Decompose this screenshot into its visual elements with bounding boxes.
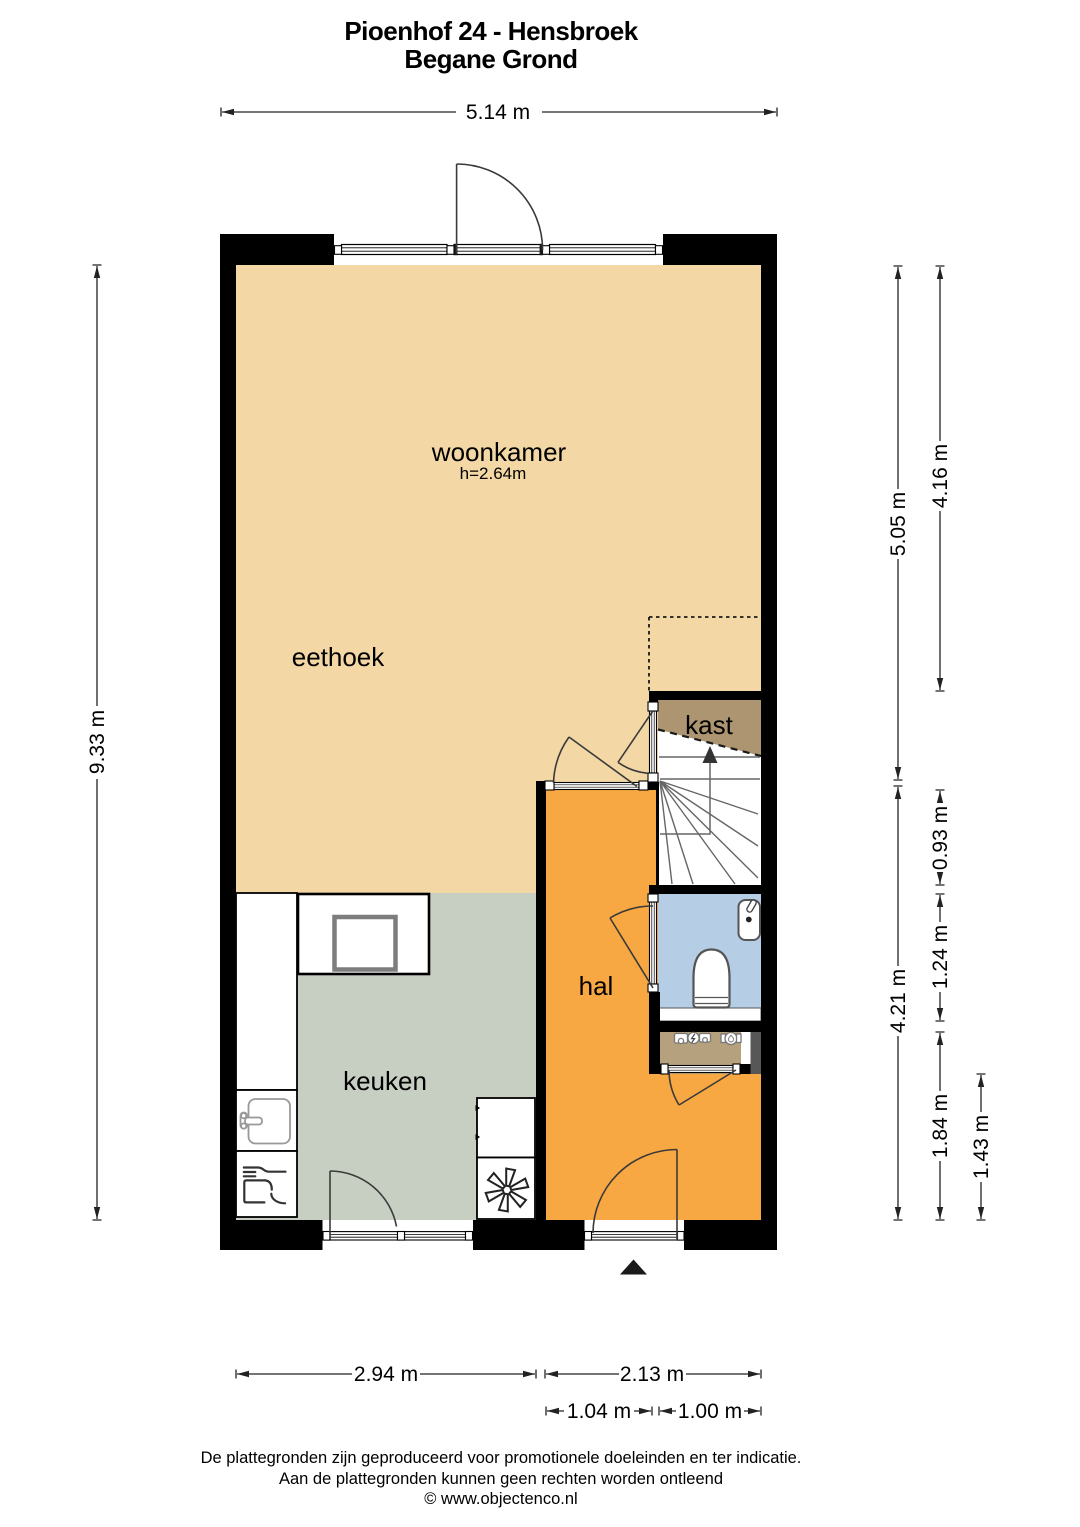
svg-text:keuken: keuken [343,1066,427,1096]
svg-text:Aan de plattegronden kunnen ge: Aan de plattegronden kunnen geen rechten… [279,1470,723,1488]
svg-text:1.04 m: 1.04 m [567,1400,631,1423]
svg-text:1.43 m: 1.43 m [970,1115,993,1179]
svg-text:5.05 m: 5.05 m [887,492,910,556]
svg-text:5.14 m: 5.14 m [466,101,530,124]
svg-text:2.94 m: 2.94 m [354,1363,418,1386]
svg-text:2.13 m: 2.13 m [620,1363,684,1386]
svg-text:Pioenhof 24 - Hensbroek: Pioenhof 24 - Hensbroek [344,16,638,46]
svg-text:De plattegronden zijn geproduc: De plattegronden zijn geproduceerd voor … [201,1449,802,1467]
svg-text:eethoek: eethoek [292,642,386,672]
svg-text:hal: hal [579,971,614,1001]
svg-text:1.24 m: 1.24 m [929,925,952,989]
svg-text:4.21 m: 4.21 m [887,969,910,1033]
svg-text:h=2.64m: h=2.64m [460,464,527,483]
svg-text:0.93 m: 0.93 m [929,806,952,870]
svg-text:woonkamer: woonkamer [431,437,567,467]
svg-text:1.84 m: 1.84 m [929,1094,952,1158]
svg-text:4.16 m: 4.16 m [929,444,952,508]
svg-text:© www.objectenco.nl: © www.objectenco.nl [424,1490,577,1508]
svg-text:Begane Grond: Begane Grond [404,44,577,74]
svg-text:kast: kast [685,710,733,740]
svg-text:9.33 m: 9.33 m [86,710,109,774]
svg-text:1.00 m: 1.00 m [678,1400,742,1423]
